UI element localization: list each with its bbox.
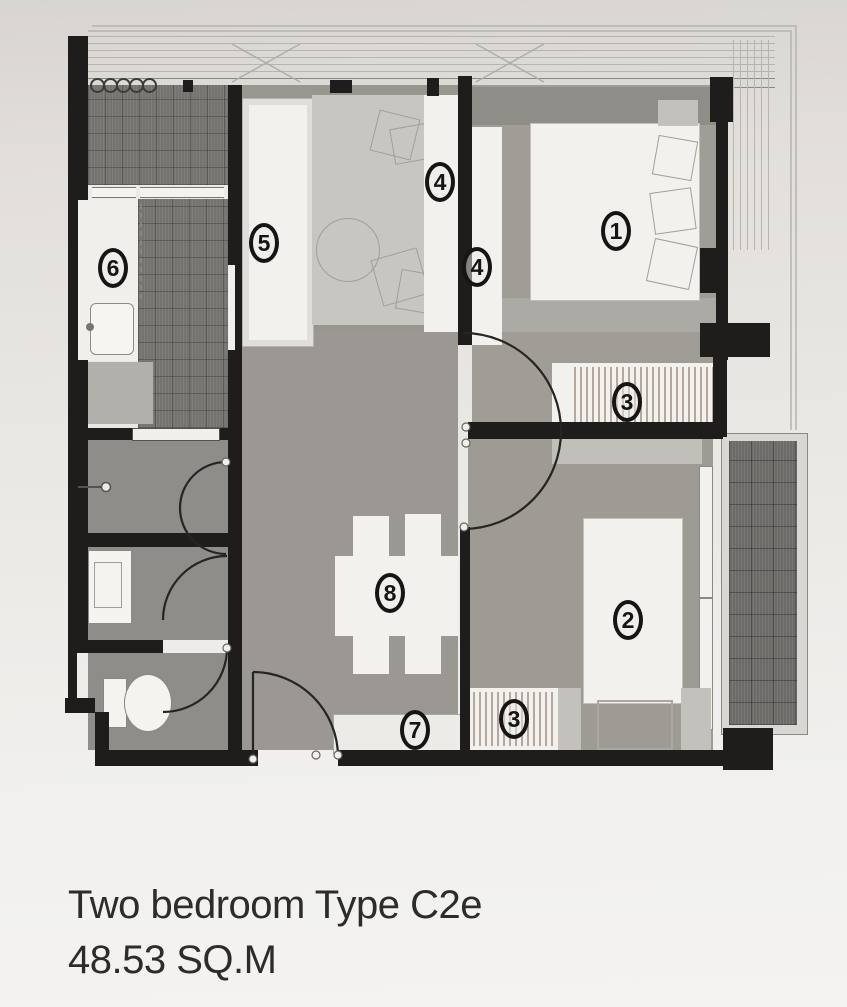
- plan-type-title: Two bedroom Type C2e: [68, 878, 482, 933]
- marker-7: 7: [400, 710, 430, 750]
- marker-3: 3: [612, 382, 642, 422]
- door-arc-icon: [163, 333, 561, 757]
- marker-1: 1: [601, 211, 631, 251]
- marker-label: 4: [471, 254, 484, 281]
- marker-4: 4: [462, 247, 492, 287]
- marker-label: 3: [508, 706, 521, 733]
- marker-3: 3: [499, 699, 529, 739]
- plan-area-text: 48.53 SQ.M: [68, 933, 482, 988]
- floor-plan: 1 2 3 3 4 4 5 6 7 8 Two bedroom Type C2e…: [0, 0, 847, 1007]
- marker-4: 4: [425, 162, 455, 202]
- door-hinge-dot: [222, 423, 470, 763]
- marker-label: 7: [409, 717, 422, 744]
- marker-label: 5: [258, 230, 271, 257]
- plan-annotations: [0, 0, 847, 1007]
- marker-8: 8: [375, 573, 405, 613]
- marker-label: 6: [107, 255, 120, 282]
- envelope-lines: [88, 26, 796, 430]
- marker-label: 3: [621, 389, 634, 416]
- marker-label: 1: [610, 218, 623, 245]
- marker-label: 4: [434, 169, 447, 196]
- marker-5: 5: [249, 223, 279, 263]
- marker-2: 2: [613, 600, 643, 640]
- window-opening-icon: [232, 44, 544, 82]
- plan-caption: Two bedroom Type C2e 48.53 SQ.M: [68, 878, 482, 988]
- marker-6: 6: [98, 248, 128, 288]
- wall-fixture-icon: [78, 483, 111, 492]
- marker-label: 8: [384, 580, 397, 607]
- marker-label: 2: [622, 607, 635, 634]
